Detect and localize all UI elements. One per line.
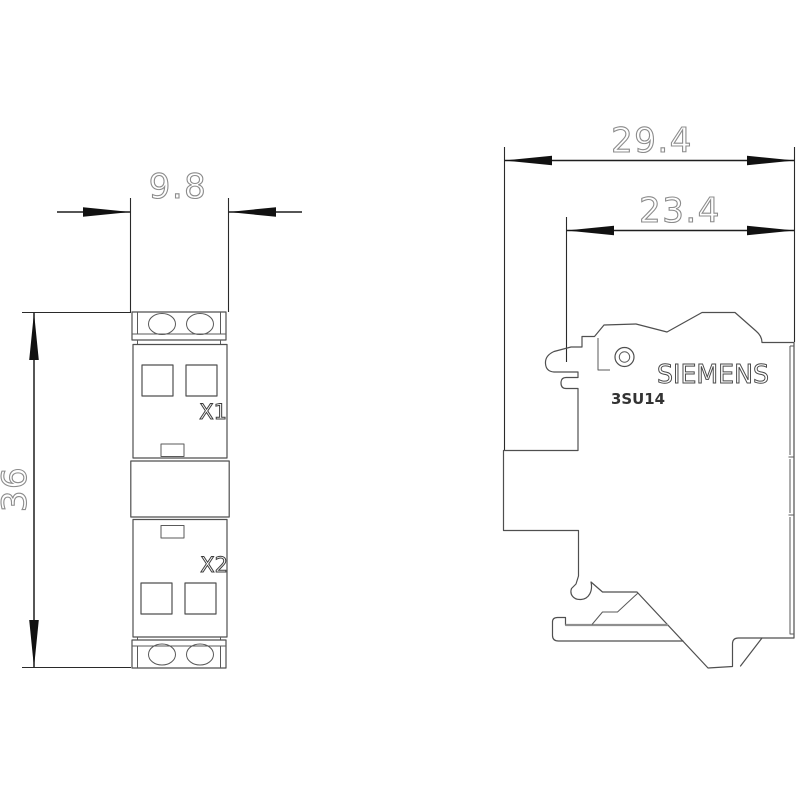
dimension-value-height: 36: [0, 466, 35, 512]
dimension-value-overall-depth: 29.4: [611, 121, 693, 161]
middle-section: [131, 461, 229, 517]
terminal-label-x2: X2: [200, 553, 228, 577]
dimension-value-width: 9.8: [149, 167, 208, 207]
arrowhead: [567, 226, 615, 236]
technical-drawing-page: 9.8 36 X1: [0, 0, 800, 800]
module-housing: [133, 520, 227, 638]
screw-terminal: [187, 644, 214, 665]
latch-slot: [161, 526, 184, 539]
screw-terminal: [187, 314, 214, 335]
middle-housing: [131, 461, 229, 517]
contact-window: [185, 583, 216, 614]
clip-notch-line: [592, 593, 638, 625]
module-x2: X2: [133, 520, 228, 638]
latch-inner-line: [598, 338, 610, 370]
terminal-housing: [132, 640, 226, 668]
screw-terminal: [149, 644, 176, 665]
terminal-block-top: [132, 312, 226, 345]
brand-logo-text: SIEMENS: [657, 360, 769, 390]
module-x1: X1: [133, 345, 227, 459]
dimension-value-body-depth: 23.4: [639, 191, 721, 231]
arrowhead: [505, 156, 553, 166]
contact-window: [141, 583, 172, 614]
front-view: 9.8 36 X1: [0, 167, 302, 668]
contact-window: [142, 365, 173, 396]
arrowhead: [29, 313, 39, 361]
dimension-height: 36: [0, 313, 131, 668]
right-edge-inner-contour: [789, 346, 795, 634]
rivet-outer-circle: [615, 348, 634, 367]
arrowhead: [747, 226, 795, 236]
arrowhead: [29, 620, 39, 668]
latch-slot: [161, 444, 184, 457]
terminal-block-bottom: [132, 637, 226, 668]
screw-terminal: [149, 314, 176, 335]
side-view: 29.4 23.4 SIEMENS 3SU14: [504, 121, 795, 668]
terminal-housing: [132, 312, 226, 340]
latch-rivet: [598, 338, 634, 370]
dimension-drawing: 9.8 36 X1: [0, 0, 800, 800]
arrowhead: [83, 207, 131, 217]
terminal-label-x1: X1: [199, 400, 227, 424]
rivet-inner-circle: [619, 352, 629, 362]
product-code-text: 3SU14: [611, 390, 665, 408]
contact-window: [186, 365, 217, 396]
dimension-width: 9.8: [57, 167, 302, 312]
arrowhead: [747, 156, 795, 166]
arrowhead: [229, 207, 277, 217]
foot-slant-line: [741, 638, 763, 666]
din-rail-clip: [553, 593, 684, 641]
